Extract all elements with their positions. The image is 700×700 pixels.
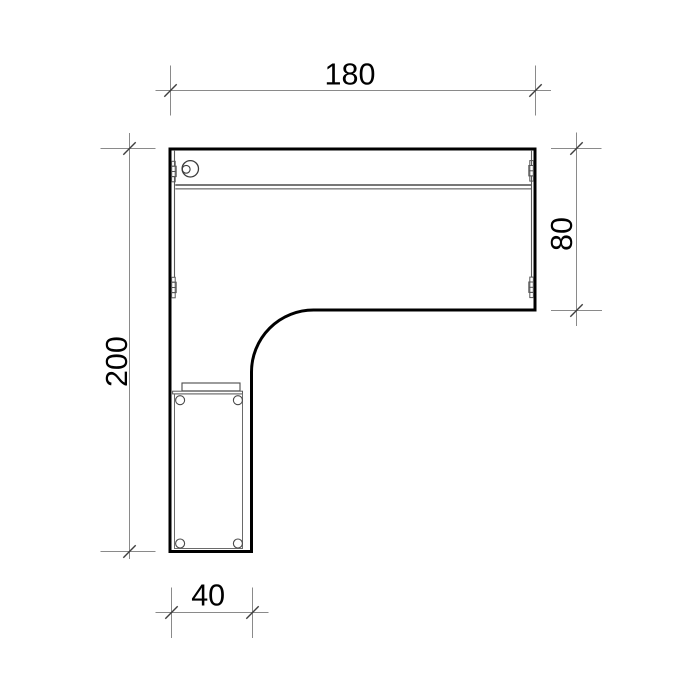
svg-text:40: 40 (191, 579, 225, 613)
svg-text:80: 80 (545, 217, 579, 251)
svg-text:200: 200 (100, 336, 134, 387)
svg-text:180: 180 (325, 58, 376, 92)
